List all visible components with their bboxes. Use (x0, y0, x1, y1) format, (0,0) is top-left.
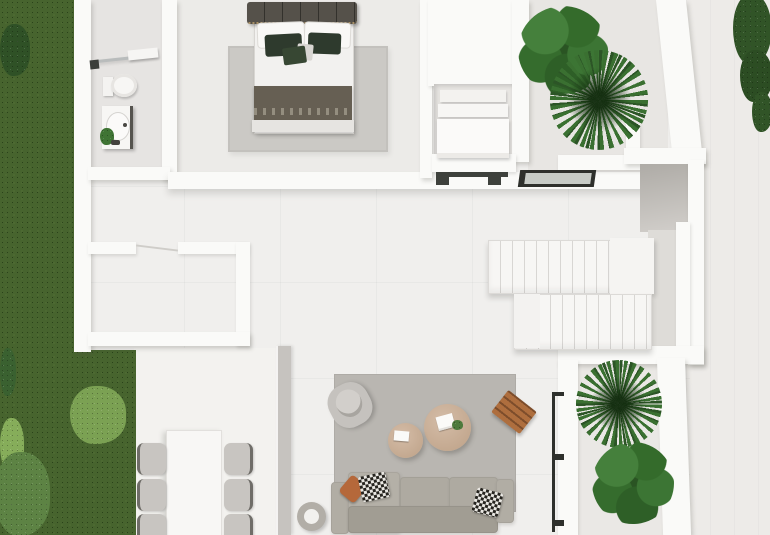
fiddle-leaf-plant-bottom (592, 442, 674, 524)
dining-chair (137, 443, 166, 475)
dining-chair (224, 479, 253, 511)
wall-east-mid (688, 160, 704, 365)
glass-wall-mullion (552, 520, 564, 526)
dining-table (166, 430, 222, 535)
wall-stairs-east (676, 222, 690, 352)
stair-flight-upper (488, 240, 614, 294)
wall-storage-south (88, 332, 250, 346)
sliding-door-stile (436, 172, 449, 185)
glass-wall-mullion (552, 454, 564, 460)
wall-storage-east (236, 242, 250, 346)
wardrobe-drawer-unit (437, 119, 509, 158)
armchair-seat (331, 385, 367, 422)
wall-bathroom-east (162, 0, 177, 178)
bed-pillow-accent-green (282, 45, 307, 65)
wall-bathroom-south (88, 167, 170, 180)
toilet-bowl (111, 74, 137, 97)
stair-landing (610, 238, 654, 294)
coffee-table-tray (394, 430, 410, 441)
planter-pot (297, 502, 326, 531)
glass-wall-frame (552, 392, 555, 532)
stair-lower-landing (514, 294, 540, 348)
bed-footboard (252, 120, 354, 132)
shower-fixture (90, 60, 100, 70)
wardrobe-block (428, 0, 516, 86)
dining-chair (137, 514, 166, 535)
skylight-glass (524, 173, 592, 184)
dining-chair (224, 514, 253, 535)
bed-blanket (254, 86, 352, 120)
wall-courtyard-bottom-west (558, 360, 578, 535)
bush-bottom-left (0, 452, 50, 535)
wall-storage-north-a (88, 242, 136, 254)
coffee-table-sprig (452, 420, 463, 430)
dining-chair (137, 479, 166, 511)
bush-small-garden (0, 348, 16, 396)
bush-round-garden (70, 386, 126, 444)
dining-chair (224, 443, 253, 475)
dining-living-divider (276, 346, 291, 535)
wardrobe-shelf (438, 104, 508, 117)
vanity-edge (130, 106, 133, 149)
bush-top-right-tip (752, 92, 770, 132)
bush-top-left (0, 24, 30, 76)
floorplan-render (0, 0, 770, 535)
faucet (123, 123, 127, 127)
wardrobe-shelf (440, 90, 506, 102)
sliding-door-stile (488, 172, 501, 185)
vanity-items (111, 140, 120, 145)
planter-pot-inner (304, 509, 319, 524)
glass-wall-mullion (552, 392, 564, 396)
